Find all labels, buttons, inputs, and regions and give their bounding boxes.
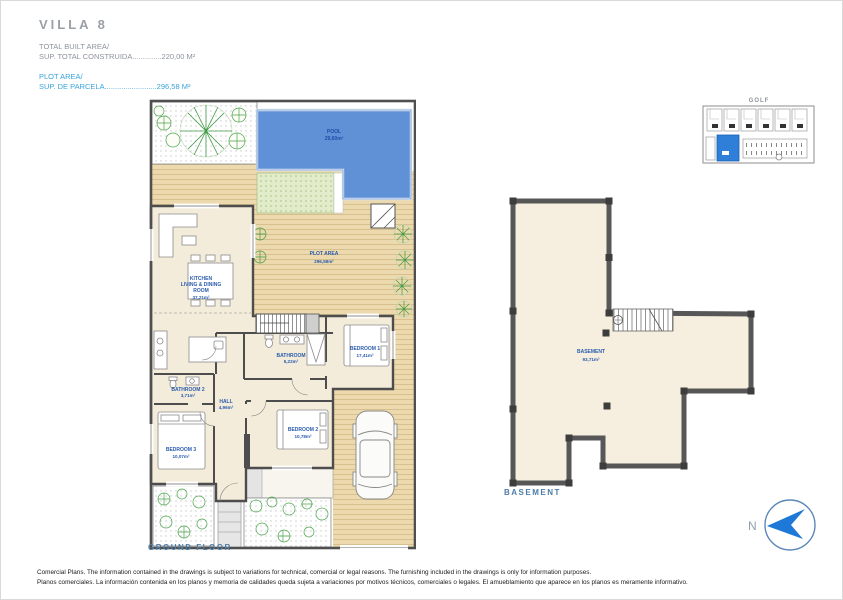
site-highlighted-unit xyxy=(717,135,739,161)
disclaimer-line-es: Planos comerciales. La información conte… xyxy=(37,578,815,588)
site-right-block xyxy=(743,139,807,158)
site-small-cell xyxy=(706,137,715,160)
plan-sheet: VILLA 8 TOTAL BUILT AREA/ SUP. TOTAL CON… xyxy=(0,0,843,600)
kitchen-label-3: ROOM xyxy=(193,288,209,294)
built-area-value: SUP. TOTAL CONSTRUIDA..............220,0… xyxy=(39,52,195,62)
site-location-map: GOLF xyxy=(701,93,816,167)
plot-area-plan-label: PLOT AREA xyxy=(310,251,339,257)
garden-bottom-left xyxy=(153,486,214,546)
palm-tree-large xyxy=(180,105,232,157)
entry-steps xyxy=(218,501,241,548)
ground-floor-plan: POOL 29,60m² PLOT AREA 296,58m² xyxy=(144,94,416,556)
basement-stairs xyxy=(613,309,673,331)
pool-area: 29,60m² xyxy=(325,136,344,142)
kitchen-area: 37,21m² xyxy=(192,295,210,300)
lawn-edge-strip xyxy=(334,173,343,213)
north-arrow-icon xyxy=(767,509,805,539)
villa-title: VILLA 8 xyxy=(39,17,195,32)
garden-bottom-middle xyxy=(244,498,331,547)
compass: N xyxy=(743,493,829,557)
bedroom3-area: 10,07m² xyxy=(172,454,190,459)
hall-area: 4,96m² xyxy=(219,405,234,410)
built-area-label: TOTAL BUILT AREA/ xyxy=(39,42,195,52)
basement-room-label: BASEMENT xyxy=(577,349,605,355)
pool-label: POOL xyxy=(327,129,341,135)
closet-wall xyxy=(244,434,250,468)
shower xyxy=(307,334,325,365)
bedroom1-area: 17,41m² xyxy=(356,353,374,358)
toilet-1 xyxy=(266,339,273,348)
deck-gate xyxy=(371,204,395,228)
site-highlight-mark xyxy=(722,151,729,155)
plot-area-block: PLOT AREA/ SUP. DE PARCELA..............… xyxy=(39,72,195,92)
site-roundabout xyxy=(776,154,782,160)
basement-plan: BASEMENT 93,71m² xyxy=(501,196,761,496)
basement-outline xyxy=(513,201,751,483)
bathroom2-area: 3,71m² xyxy=(181,393,196,398)
basement-room-area: 93,71m² xyxy=(582,357,600,362)
bedroom2-label: BEDROOM 2 xyxy=(288,427,319,433)
disclaimer: Comercial Plans. The information contain… xyxy=(37,568,815,587)
sheet-header: VILLA 8 TOTAL BUILT AREA/ SUP. TOTAL CON… xyxy=(39,17,195,93)
coffee-table xyxy=(182,236,196,245)
stairs xyxy=(256,314,319,333)
plot-area-plan-value: 296,58m² xyxy=(314,259,334,264)
disclaimer-line-en: Comercial Plans. The information contain… xyxy=(37,568,815,578)
bedroom1-label: BEDROOM 1 xyxy=(350,346,381,352)
plot-area-label: PLOT AREA/ xyxy=(39,72,195,82)
bedroom3-label: BEDROOM 3 xyxy=(166,447,197,453)
lawn-patch xyxy=(257,173,334,213)
built-area-block: TOTAL BUILT AREA/ SUP. TOTAL CONSTRUIDA.… xyxy=(39,42,195,62)
driveway-gate xyxy=(340,545,408,550)
golf-label: GOLF xyxy=(749,98,770,104)
ground-floor-caption: GROUND FLOOR xyxy=(148,543,232,552)
plot-area-value: SUP. DE PARCELA.........................… xyxy=(39,82,195,92)
car xyxy=(353,411,397,499)
compass-n-label: N xyxy=(748,519,757,533)
terrace-steps xyxy=(246,468,262,498)
bedroom2-area: 10,78m² xyxy=(294,434,312,439)
basement-caption: BASEMENT xyxy=(504,488,561,497)
bathroom1-area: 5,22m² xyxy=(284,359,299,364)
